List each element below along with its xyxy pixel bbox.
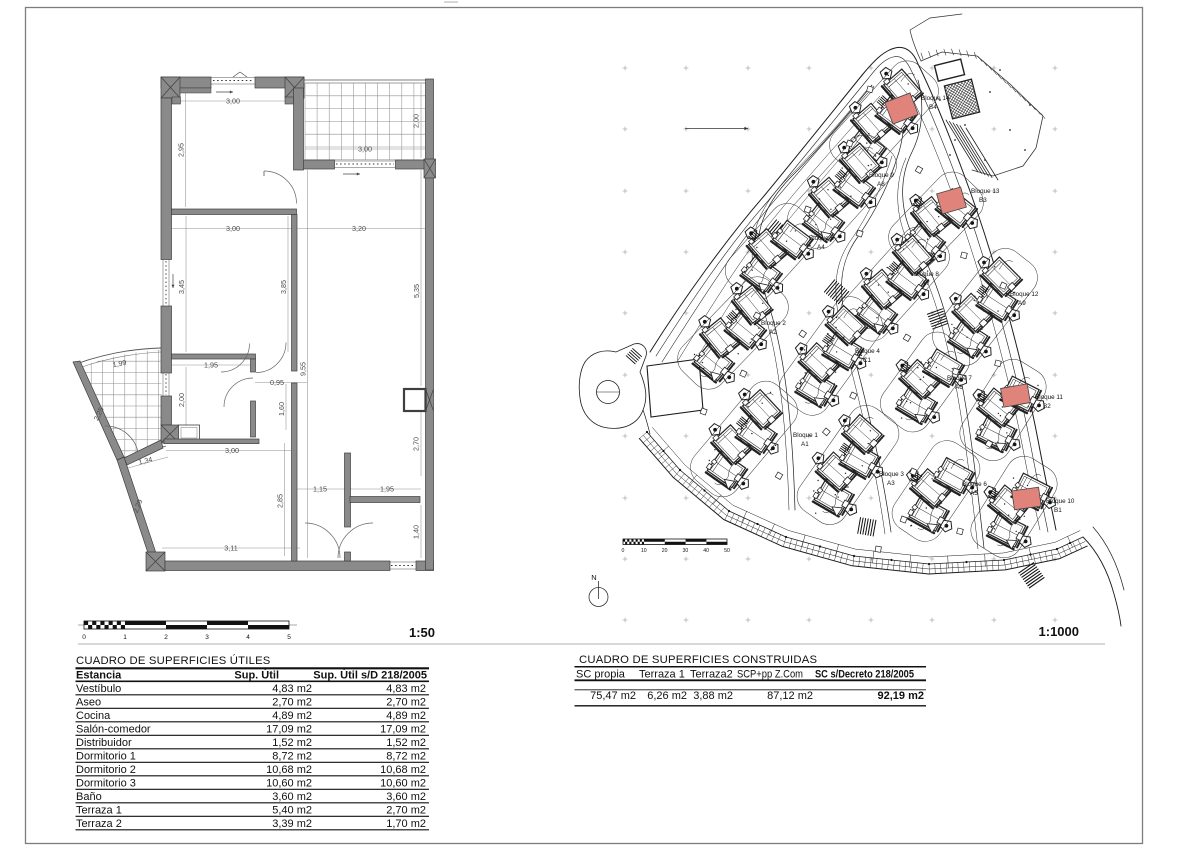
svg-text:Bloque 5: Bloque 5: [809, 235, 834, 242]
svg-text:SC s/Decreto 218/2005: SC s/Decreto 218/2005: [815, 669, 914, 681]
svg-text:Bloque 12: Bloque 12: [1010, 291, 1039, 298]
svg-text:3: 3: [205, 634, 209, 641]
svg-text:2,85: 2,85: [276, 494, 285, 508]
svg-text:Bloque 11: Bloque 11: [1035, 394, 1063, 401]
svg-text:2,70 m2: 2,70 m2: [386, 804, 426, 816]
svg-text:Bloque 1: Bloque 1: [793, 432, 818, 439]
svg-text:Sup. Útil s/D 218/2005: Sup. Útil s/D 218/2005: [313, 669, 427, 682]
svg-text:10: 10: [641, 548, 647, 554]
svg-text:Vestíbulo: Vestíbulo: [76, 683, 121, 695]
svg-text:17,09 m2: 17,09 m2: [266, 723, 312, 735]
svg-text:Aseo: Aseo: [76, 696, 101, 708]
svg-text:0: 0: [622, 548, 625, 554]
svg-text:5,35: 5,35: [412, 284, 421, 298]
svg-text:3,45: 3,45: [177, 280, 186, 294]
svg-text:1:1000: 1:1000: [1039, 624, 1079, 639]
svg-text:CUADRO DE SUPERFICIES ÚTILES: CUADRO DE SUPERFICIES ÚTILES: [76, 654, 271, 667]
svg-text:8,72 m2: 8,72 m2: [386, 750, 426, 762]
svg-text:10,60 m2: 10,60 m2: [266, 777, 312, 789]
svg-text:1,70 m2: 1,70 m2: [386, 818, 426, 830]
svg-text:Bloque 8: Bloque 8: [914, 271, 939, 278]
svg-text:2,70 m2: 2,70 m2: [272, 696, 312, 708]
svg-text:1,95: 1,95: [380, 485, 394, 494]
svg-text:1,40: 1,40: [412, 525, 421, 539]
svg-text:4,89 m2: 4,89 m2: [272, 710, 312, 722]
svg-text:4: 4: [246, 634, 250, 641]
svg-text:3,60 m2: 3,60 m2: [386, 791, 426, 803]
svg-text:A6: A6: [955, 384, 963, 391]
svg-text:CUADRO DE SUPERFICIES CONSTRUI: CUADRO DE SUPERFICIES CONSTRUIDAS: [579, 654, 817, 666]
svg-text:40: 40: [703, 548, 709, 554]
svg-text:1: 1: [123, 634, 127, 641]
svg-text:4,89 m2: 4,89 m2: [386, 710, 426, 722]
svg-text:3,60 m2: 3,60 m2: [272, 791, 312, 803]
svg-text:0,95: 0,95: [270, 378, 284, 387]
svg-text:2,70: 2,70: [412, 437, 421, 451]
svg-text:20: 20: [662, 548, 668, 554]
svg-text:A9: A9: [1018, 300, 1026, 307]
svg-text:Sup. Útil: Sup. Útil: [234, 669, 279, 682]
svg-text:Terraza2: Terraza2: [690, 669, 733, 681]
svg-text:C1: C1: [863, 357, 872, 364]
svg-text:A7: A7: [922, 280, 930, 287]
svg-text:Dormitorio 3: Dormitorio 3: [76, 777, 136, 789]
svg-text:Bloque 7: Bloque 7: [947, 375, 972, 382]
svg-text:10,68 m2: 10,68 m2: [380, 764, 426, 776]
svg-text:B4: B4: [929, 104, 937, 111]
svg-text:4,83 m2: 4,83 m2: [386, 683, 426, 695]
svg-text:A3: A3: [887, 480, 895, 487]
svg-text:Bloque 9: Bloque 9: [869, 172, 894, 179]
svg-text:B2: B2: [1043, 403, 1051, 410]
svg-text:6,26 m2: 6,26 m2: [647, 690, 687, 702]
svg-text:3,85: 3,85: [279, 280, 288, 294]
svg-text:A5: A5: [970, 490, 978, 497]
svg-text:1,95: 1,95: [204, 361, 218, 370]
svg-text:1,15: 1,15: [313, 485, 327, 494]
svg-text:A4: A4: [817, 244, 825, 251]
svg-text:10,68 m2: 10,68 m2: [266, 764, 312, 776]
svg-text:SC propia: SC propia: [576, 669, 626, 681]
svg-text:3,00: 3,00: [358, 145, 372, 154]
svg-text:Terraza 2: Terraza 2: [76, 818, 122, 830]
svg-text:3,00: 3,00: [225, 446, 239, 455]
svg-text:B3: B3: [979, 197, 987, 204]
svg-text:3,39 m2: 3,39 m2: [272, 818, 312, 830]
svg-text:4,83 m2: 4,83 m2: [272, 683, 312, 695]
svg-text:9,55: 9,55: [299, 362, 308, 376]
svg-text:Terraza 1: Terraza 1: [639, 669, 685, 681]
svg-text:5: 5: [287, 634, 291, 641]
svg-text:Bloque 13: Bloque 13: [971, 188, 1000, 195]
svg-text:Bloque 4: Bloque 4: [855, 348, 880, 355]
svg-text:92,19 m2: 92,19 m2: [878, 690, 924, 702]
svg-text:75,47 m2: 75,47 m2: [590, 690, 636, 702]
svg-text:A8: A8: [877, 181, 885, 188]
svg-text:Terraza 1: Terraza 1: [76, 804, 122, 816]
svg-text:3,20: 3,20: [352, 224, 366, 233]
svg-text:1,52 m2: 1,52 m2: [272, 737, 312, 749]
svg-text:2,70 m2: 2,70 m2: [386, 696, 426, 708]
svg-text:17,09 m2: 17,09 m2: [380, 723, 426, 735]
svg-text:Baño: Baño: [76, 791, 102, 803]
svg-text:2,00: 2,00: [412, 114, 421, 128]
svg-text:Dormitorio 1: Dormitorio 1: [76, 750, 136, 762]
svg-text:0: 0: [82, 634, 86, 641]
svg-text:Bloque 6: Bloque 6: [962, 481, 987, 488]
svg-text:Cocina: Cocina: [76, 710, 111, 722]
svg-text:2,00: 2,00: [177, 393, 186, 407]
svg-text:3,00: 3,00: [226, 224, 240, 233]
svg-text:3,00: 3,00: [226, 97, 240, 106]
svg-text:N: N: [591, 573, 596, 582]
svg-text:2,95: 2,95: [177, 143, 186, 157]
svg-text:A2: A2: [769, 329, 777, 336]
svg-text:87,12 m2: 87,12 m2: [767, 690, 813, 702]
svg-text:50: 50: [724, 548, 730, 554]
svg-text:B1: B1: [1054, 507, 1062, 514]
svg-text:Dormitorio 2: Dormitorio 2: [76, 764, 136, 776]
svg-text:1,52 m2: 1,52 m2: [386, 737, 426, 749]
svg-text:Bloque 14: Bloque 14: [921, 95, 950, 102]
svg-text:1,60: 1,60: [277, 402, 286, 416]
svg-text:3,11: 3,11: [224, 544, 237, 553]
svg-text:2: 2: [164, 634, 168, 641]
svg-text:30: 30: [683, 548, 689, 554]
svg-text:Salón-comedor: Salón-comedor: [76, 723, 151, 735]
svg-text:Bloque 2: Bloque 2: [761, 320, 786, 327]
svg-text:10,60 m2: 10,60 m2: [380, 777, 426, 789]
svg-text:1:50: 1:50: [409, 625, 435, 640]
svg-text:SCP+pp Z.Com: SCP+pp Z.Com: [737, 669, 803, 681]
svg-text:5,40 m2: 5,40 m2: [272, 804, 312, 816]
svg-text:3,88 m2: 3,88 m2: [693, 690, 733, 702]
svg-text:Distribuidor: Distribuidor: [76, 737, 132, 749]
svg-text:Bloque 3: Bloque 3: [879, 471, 904, 478]
svg-text:Bloque 10: Bloque 10: [1046, 498, 1075, 505]
svg-text:8,72 m2: 8,72 m2: [272, 750, 312, 762]
svg-text:Estancia: Estancia: [76, 670, 122, 682]
svg-text:A1: A1: [801, 441, 809, 448]
